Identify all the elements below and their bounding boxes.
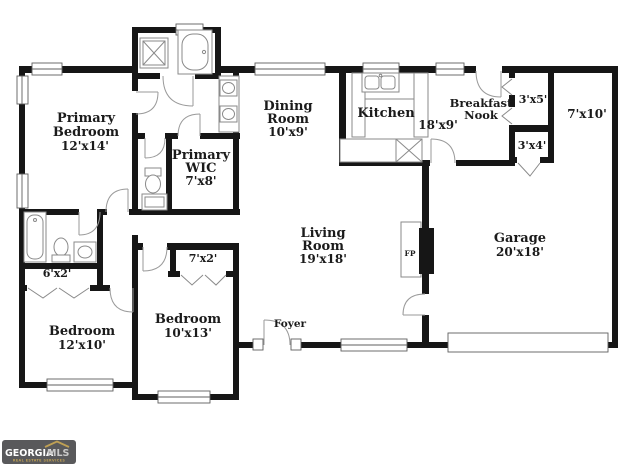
- label-bedroom-12x10: Bedroom: [49, 324, 116, 339]
- front-door-jamb: [253, 339, 263, 350]
- label-closet-6x2: 6'x2': [43, 267, 72, 280]
- door-swing: [431, 139, 455, 163]
- window: [158, 391, 210, 403]
- window: [341, 339, 407, 351]
- door-swing: [476, 71, 501, 97]
- label-garage-dims: 20'x18': [496, 245, 544, 259]
- hall-toilet-icon: [52, 238, 70, 262]
- door-swing: [79, 212, 100, 235]
- label-bedroom-10x13-dims: 10'x13': [164, 326, 212, 340]
- front-door-jamb: [291, 339, 301, 350]
- hall-sink-icon: [74, 242, 96, 262]
- label-storage-7x10: 7'x10': [567, 107, 607, 121]
- window: [436, 63, 464, 75]
- label-closet-3x4: 3'x4': [518, 139, 547, 152]
- window: [32, 63, 62, 75]
- label-bedroom-10x13: Bedroom: [155, 312, 222, 327]
- window: [47, 379, 113, 391]
- logo-brand-suffix: MLS: [47, 448, 70, 459]
- label-breakfast-nook: Nook: [464, 108, 499, 122]
- label-living-room-dims: 19'x18': [299, 252, 347, 266]
- label-bedroom-12x10-dims: 12'x10': [58, 338, 106, 352]
- label-primary-bedroom-dims: 12'x14': [61, 139, 109, 153]
- window: [17, 174, 28, 208]
- georgia-mls-logo: GEORGIA MLS REAL ESTATE SERVICES: [2, 440, 76, 464]
- door-swing: [143, 247, 167, 271]
- label-kitchen-dims: 18'x9': [418, 118, 458, 132]
- door-swing: [106, 189, 128, 212]
- hall-bathtub-icon: [24, 212, 46, 262]
- label-kitchen: Kitchen: [357, 106, 415, 121]
- shower-icon: [140, 38, 168, 68]
- logo-tagline: REAL ESTATE SERVICES: [13, 459, 66, 463]
- window: [17, 76, 28, 104]
- floor-plan: Primary Bedroom 12'x14' Primary WIC 7'x8…: [0, 0, 640, 465]
- label-foyer: Foyer: [274, 318, 307, 330]
- double-vanity-icon: [219, 76, 239, 132]
- door-swing: [403, 294, 425, 315]
- door-swing: [136, 92, 158, 114]
- floor-plan-page: Primary Bedroom 12'x14' Primary WIC 7'x8…: [0, 0, 640, 465]
- label-garage: Garage: [494, 231, 546, 246]
- door-swing: [110, 288, 133, 312]
- bathtub-icon: [178, 30, 212, 74]
- door-swing: [163, 76, 193, 106]
- label-dining-room-dims: 10'x9': [268, 125, 308, 139]
- label-primary-wic-dims: 7'x8': [185, 174, 216, 188]
- label-closet-7x2: 7'x2': [189, 252, 218, 265]
- cabinet-icon: [142, 194, 167, 210]
- label-fireplace: FP: [405, 249, 416, 258]
- label-primary-bedroom: Primary: [57, 111, 116, 126]
- door-swing: [178, 114, 200, 136]
- label-closet-3x5: 3'x5': [519, 93, 548, 106]
- window: [255, 63, 325, 75]
- garage-door: [448, 333, 608, 352]
- door-swing: [145, 138, 165, 158]
- label-primary-bedroom: Bedroom: [53, 125, 120, 140]
- range-icon: [396, 139, 422, 162]
- toilet-icon: [145, 168, 161, 193]
- kitchen-sink-icon: [362, 73, 399, 92]
